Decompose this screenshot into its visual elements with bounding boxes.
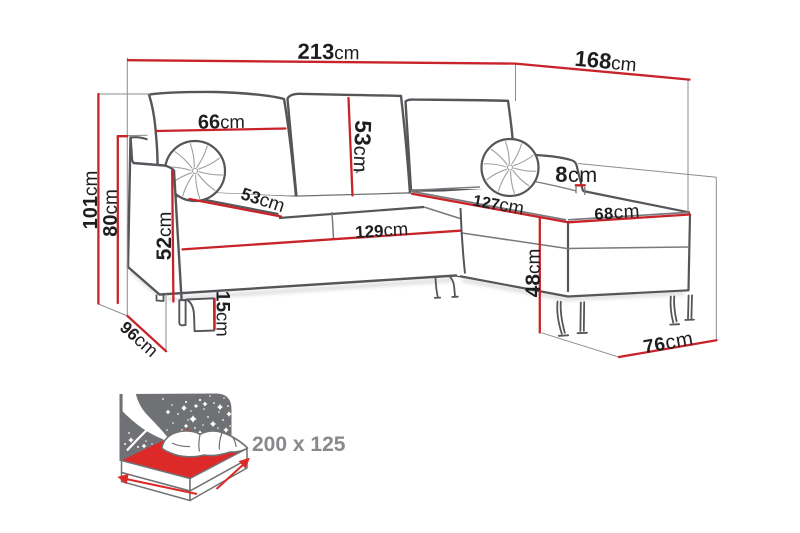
svg-text:101cm: 101cm	[80, 171, 102, 230]
svg-text:15cm: 15cm	[212, 291, 234, 337]
svg-text:200 x 125: 200 x 125	[252, 433, 346, 456]
svg-text:213cm: 213cm	[297, 39, 359, 65]
svg-text:68cm: 68cm	[594, 201, 641, 225]
svg-text:8cm: 8cm	[555, 162, 597, 187]
svg-text:48cm: 48cm	[522, 249, 545, 298]
svg-text:66cm: 66cm	[198, 111, 245, 134]
svg-text:80cm: 80cm	[100, 189, 122, 237]
svg-text:129cm: 129cm	[355, 218, 409, 242]
svg-text:52cm: 52cm	[153, 212, 176, 261]
